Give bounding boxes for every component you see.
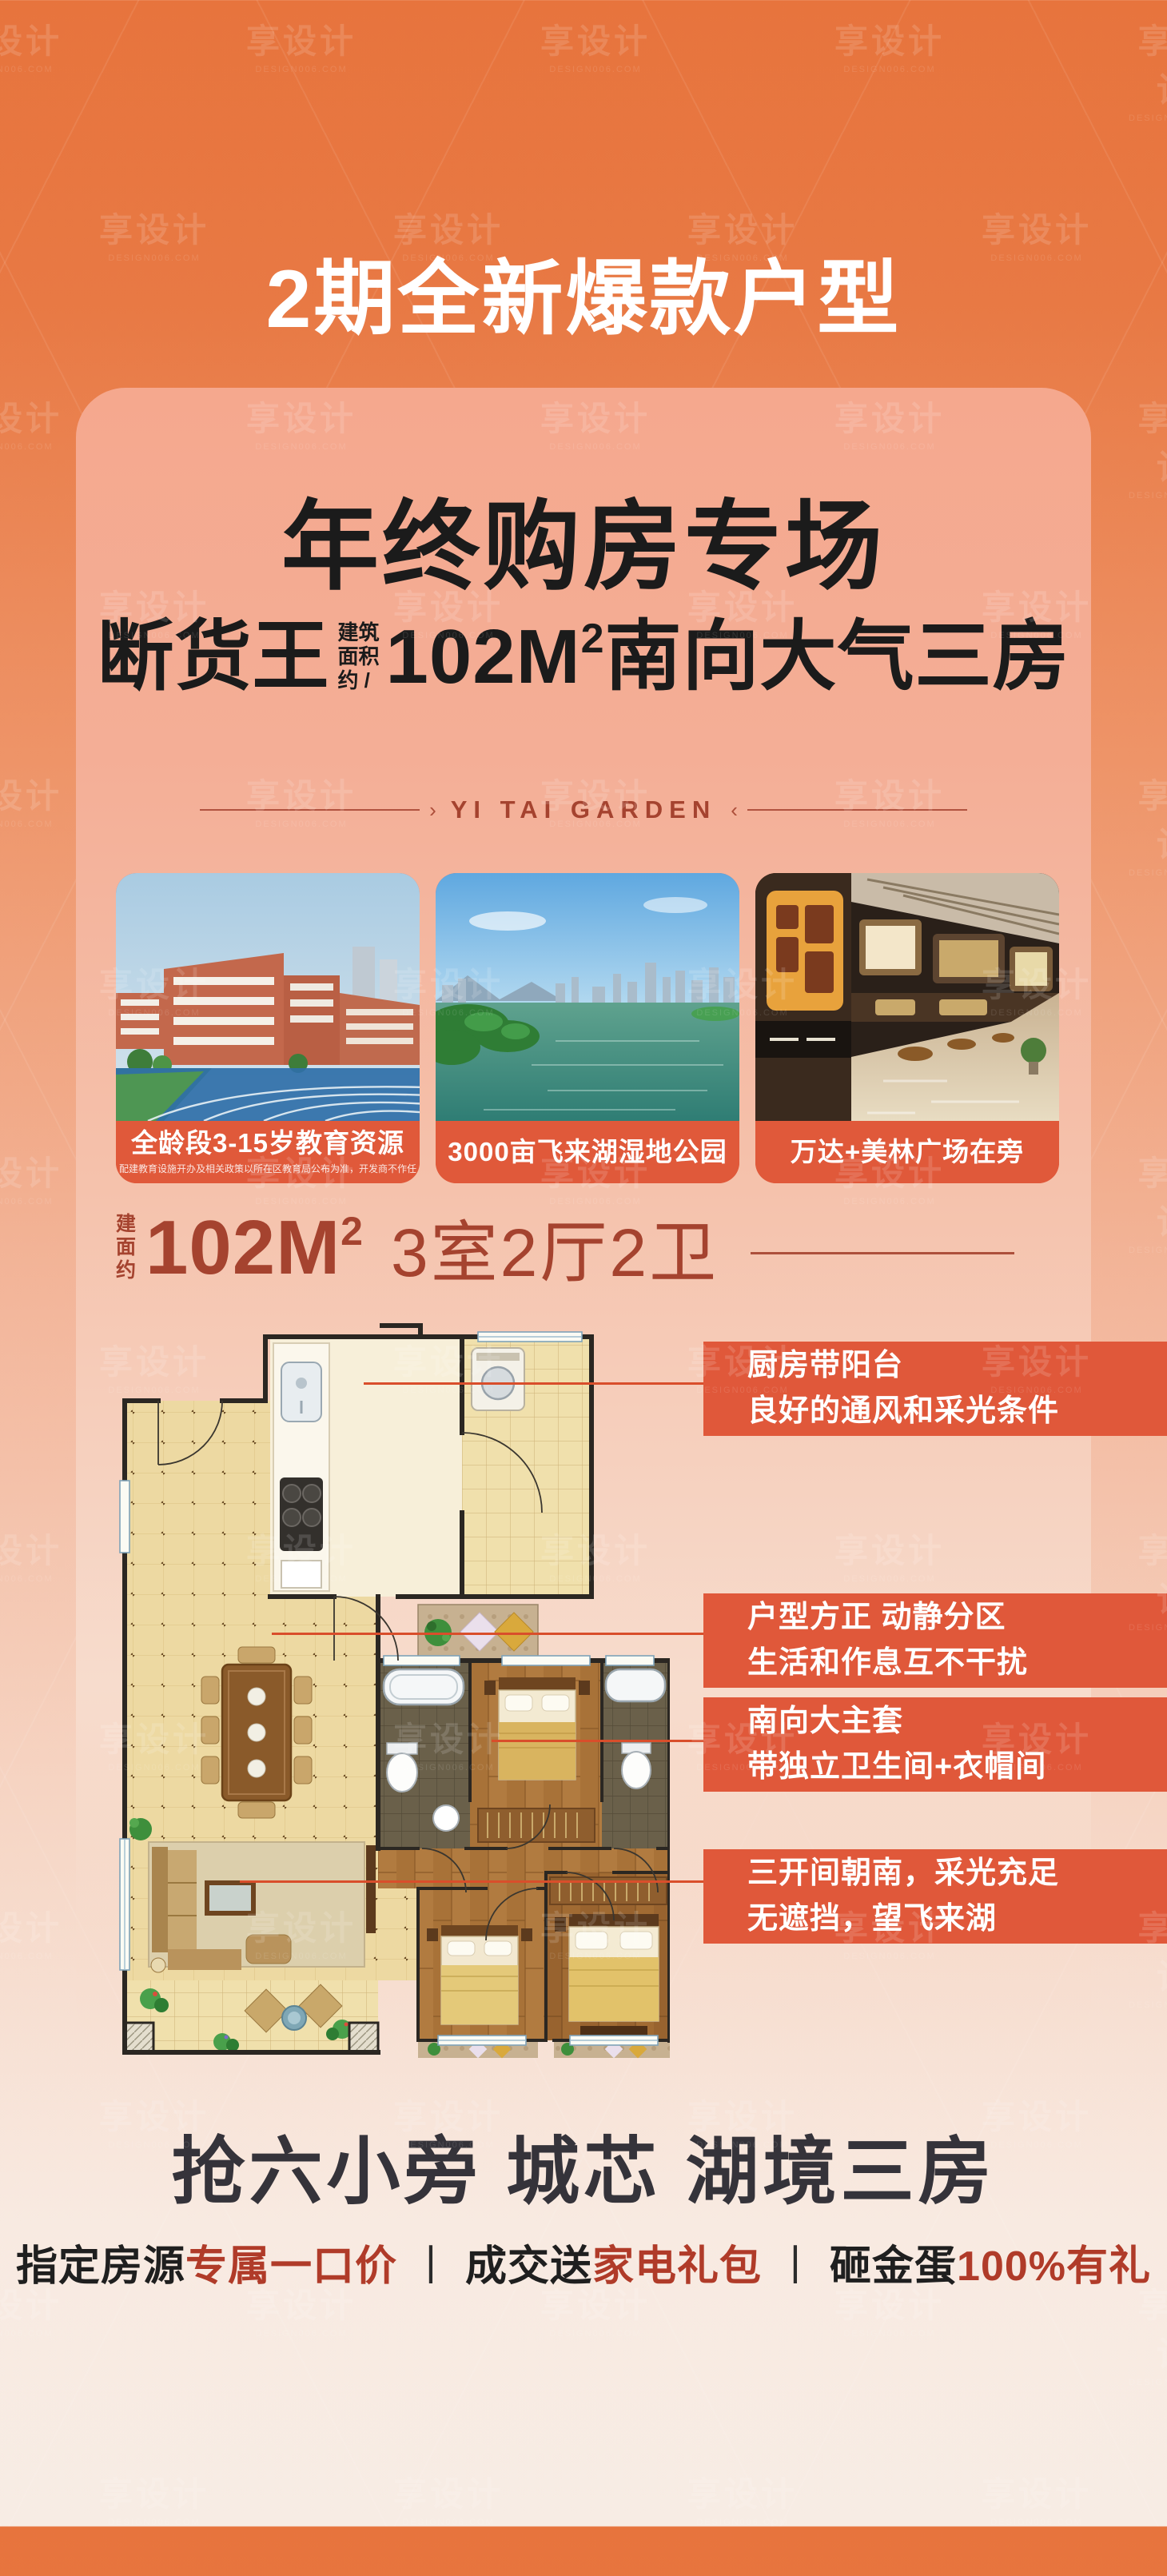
- spec-label-char3: 约: [116, 1259, 136, 1282]
- callout-layout: 户型方正 动静分区 生活和作息互不干扰: [703, 1593, 1167, 1688]
- callout-master: 南向大主套 带独立卫生间+衣帽间: [703, 1697, 1167, 1792]
- watermark: 享设计DESIGN006.COM: [0, 1146, 62, 1206]
- area-note-line2: 面积: [337, 645, 379, 669]
- spec-area-figure: 102M2: [145, 1204, 364, 1292]
- offer-highlight: 100%有礼: [957, 2232, 1151, 2292]
- callout-line1: 南向大主套: [747, 1699, 1167, 1745]
- watermark: 享设计DESIGN006.COM: [246, 14, 356, 74]
- mall-photo-illustration: [755, 873, 1059, 1121]
- callout-line2: 生活和作息互不干扰: [747, 1641, 1167, 1686]
- card-headline: 年终购房专场: [0, 468, 1167, 609]
- offer-plain: 砸金蛋: [830, 2232, 957, 2292]
- callout-line1: 三开间朝南，采光充足: [747, 1851, 1167, 1896]
- watermark: 享设计DESIGN006.COM: [1129, 1146, 1167, 1255]
- divider-rule-right: [747, 809, 967, 811]
- school-photo-illustration: [116, 873, 420, 1121]
- watermark: 享设计DESIGN006.COM: [0, 392, 62, 452]
- area-note-line3: 约 /: [337, 669, 379, 693]
- watermark: 享设计DESIGN006.COM: [0, 1524, 62, 1584]
- callout-line1: 厨房带阳台: [747, 1343, 1167, 1389]
- photo-caption-note: 配建教育设施开办及相关政策以所在区教育局公布为准，开发商不作任何承诺: [119, 1162, 416, 1175]
- subheadline-suffix: 南向大气三房: [605, 617, 1070, 698]
- photo-card-mall: 万达+美林广场在旁: [755, 873, 1059, 1183]
- offer-highlight: 专属一口价: [185, 2232, 397, 2292]
- watermark: 享设计DESIGN006.COM: [982, 2467, 1092, 2527]
- floorplan-illustration: [102, 1321, 670, 2060]
- spec-label-char2: 面: [116, 1236, 136, 1259]
- photo-caption-text: 全龄段3-15岁教育资源: [131, 1129, 404, 1158]
- bottom-headline: 抢六小旁 城芯 湖境三房: [0, 2112, 1167, 2219]
- callout-line1: 户型方正 动静分区: [747, 1595, 1167, 1641]
- area-note: 建筑 面积 约 /: [337, 621, 379, 693]
- watermark: 享设计DESIGN006.COM: [0, 1901, 62, 1961]
- card-subheadline: 断货王 建筑 面积 约 / 102M2 南向大气三房: [0, 617, 1167, 698]
- callout-kitchen: 厨房带阳台 良好的通风和采光条件: [703, 1342, 1167, 1436]
- leader-line-layout: [272, 1633, 703, 1635]
- photo-card-school: 全龄段3-15岁教育资源 配建教育设施开办及相关政策以所在区教育局公布为准，开发…: [116, 873, 420, 1183]
- callout-south: 三开间朝南，采光充足 无遮挡，望飞来湖: [703, 1849, 1167, 1944]
- offer-highlight: 家电礼包: [592, 2232, 762, 2292]
- watermark: 享设计DESIGN006.COM: [1129, 14, 1167, 123]
- offer-plain: 指定房源: [16, 2232, 185, 2292]
- page-title: 2期全新爆款户型: [0, 254, 1167, 344]
- area-value: 102M: [385, 614, 580, 700]
- offer-plain: 成交送: [465, 2232, 592, 2292]
- photo-caption-text: 3000亩飞来湖湿地公园: [448, 1138, 727, 1166]
- watermark: 享设计DESIGN006.COM: [99, 2467, 209, 2527]
- arrow-left-icon: ‹: [731, 798, 738, 823]
- photo-caption: 万达+美林广场在旁: [755, 1121, 1059, 1183]
- leader-line-master: [492, 1740, 703, 1742]
- garden-divider: › YI TAI GARDEN ‹: [0, 796, 1167, 824]
- watermark: 享设计DESIGN006.COM: [540, 14, 651, 74]
- watermark: 享设计DESIGN006.COM: [1129, 2279, 1167, 2387]
- lake-photo-illustration: [436, 873, 739, 1121]
- offer-separator: 丨: [775, 2232, 817, 2292]
- photo-strip: 全龄段3-15岁教育资源 配建教育设施开办及相关政策以所在区教育局公布为准，开发…: [116, 873, 1059, 1183]
- offer-separator: 丨: [410, 2232, 452, 2292]
- leader-line-south: [240, 1880, 703, 1883]
- photo-caption: 全龄段3-15岁教育资源 配建教育设施开办及相关政策以所在区教育局公布为准，开发…: [116, 1121, 420, 1183]
- photo-card-lake: 3000亩飞来湖湿地公园: [436, 873, 739, 1183]
- area-superscript: 2: [581, 617, 605, 661]
- callout-line2: 良好的通风和采光条件: [747, 1389, 1167, 1434]
- spec-line: 建 面 约 102M2 3室2厅2卫: [116, 1199, 1014, 1296]
- spec-area-superscript: 2: [341, 1208, 364, 1254]
- area-figure: 102M2: [385, 617, 604, 698]
- callout-line2: 带独立卫生间+衣帽间: [747, 1745, 1167, 1790]
- spec-label-char1: 建: [116, 1213, 136, 1236]
- spec-area-label: 建 面 约: [116, 1213, 136, 1282]
- watermark: 享设计DESIGN006.COM: [687, 2467, 798, 2527]
- subheadline-prefix: 断货王: [97, 617, 329, 698]
- offers-bar: 指定房源专属一口价 丨 成交送家电礼包 丨 砸金蛋100%有礼: [0, 2232, 1167, 2292]
- watermark: 享设计DESIGN006.COM: [834, 14, 945, 74]
- callout-line2: 无遮挡，望飞来湖: [747, 1896, 1167, 1942]
- spec-rule: [751, 1252, 1014, 1254]
- photo-caption: 3000亩飞来湖湿地公园: [436, 1121, 739, 1183]
- watermark: 享设计DESIGN006.COM: [393, 2467, 504, 2527]
- watermark: 享设计DESIGN006.COM: [0, 14, 62, 74]
- arrow-right-icon: ›: [429, 798, 436, 823]
- divider-rule-left: [200, 809, 420, 811]
- garden-label: YI TAI GARDEN: [451, 796, 717, 824]
- photo-caption-text: 万达+美林广场在旁: [791, 1138, 1024, 1166]
- spec-rooms: 3室2厅2卫: [391, 1199, 719, 1296]
- leader-line-kitchen: [364, 1382, 703, 1385]
- area-note-line1: 建筑: [337, 621, 379, 645]
- spec-area-value: 102M: [145, 1205, 341, 1290]
